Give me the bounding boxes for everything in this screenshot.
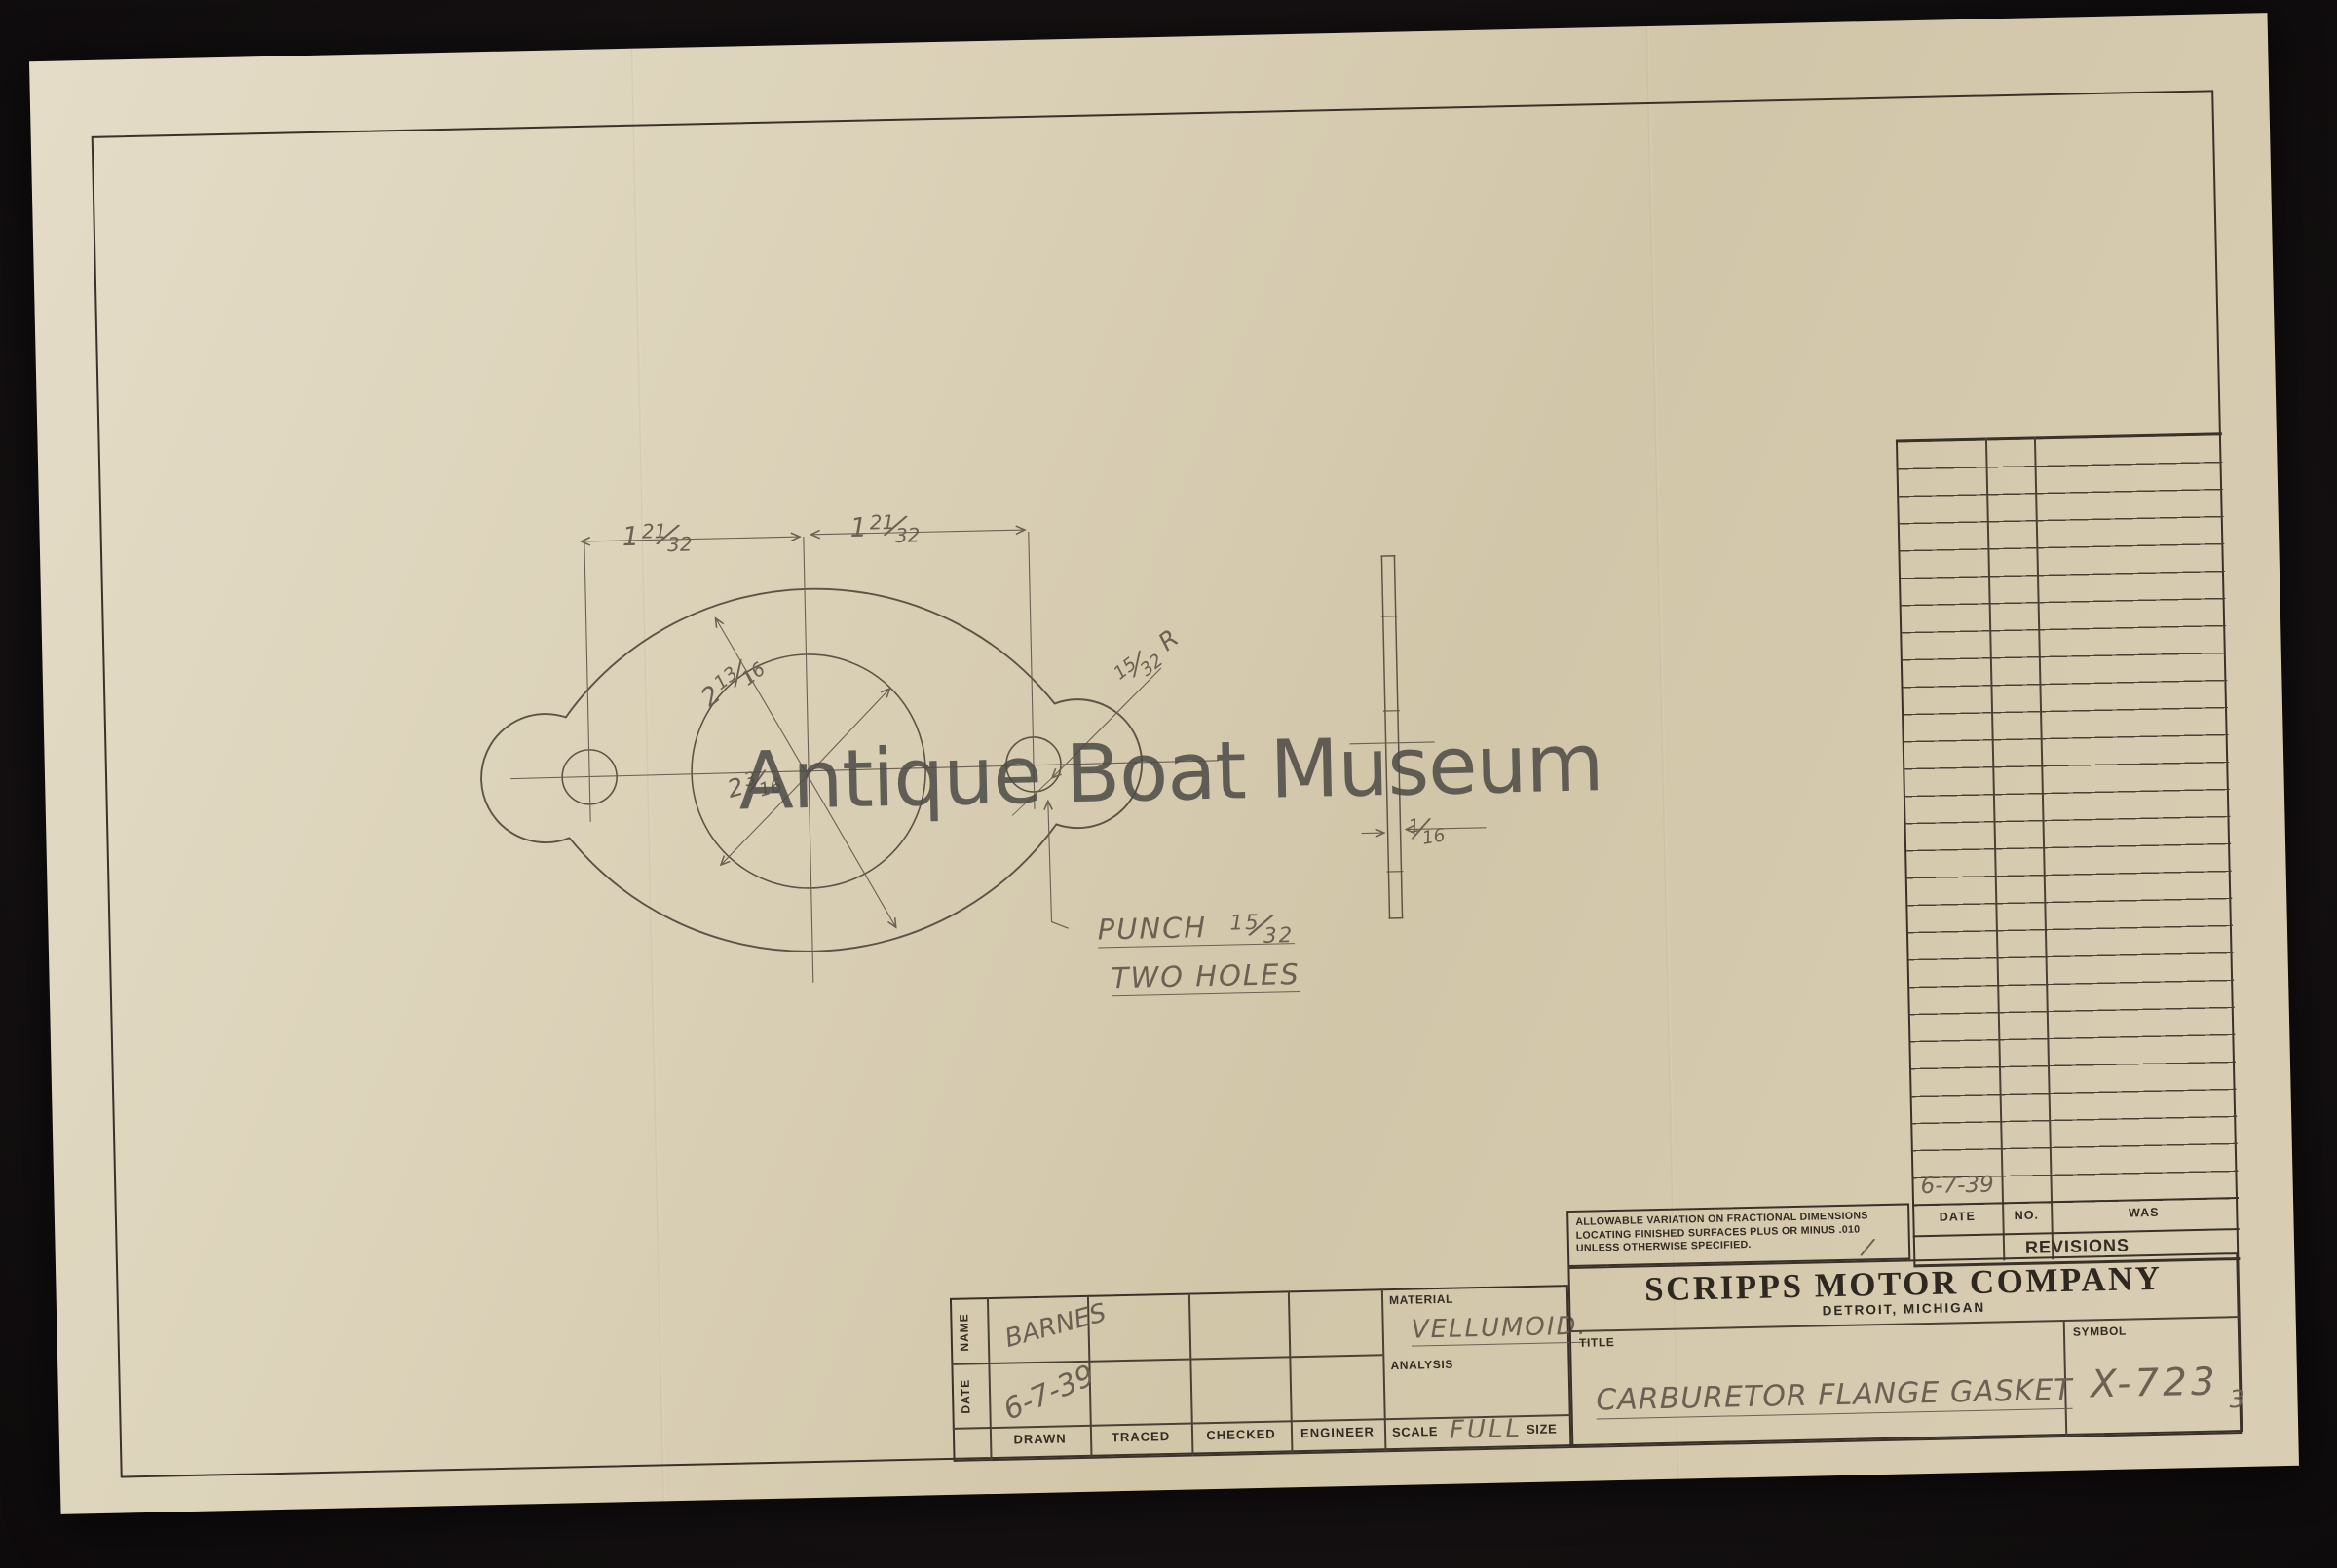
- punch-note: PUNCH 15⁄32: [1097, 909, 1295, 948]
- revision-entry-date: 6-7-39: [1920, 1173, 1994, 1200]
- material-label: MATERIAL: [1389, 1292, 1453, 1307]
- analysis-label: ANALYSIS: [1390, 1358, 1453, 1372]
- page-number: 3: [2229, 1385, 2245, 1413]
- two-holes-note: TWO HOLES: [1111, 957, 1300, 996]
- scale-value: FULL: [1450, 1414, 1524, 1445]
- dimension-thickness: 1⁄16: [1406, 811, 1447, 845]
- dimension-left-span: 121⁄32: [622, 520, 693, 552]
- date-row-label: DATE: [959, 1369, 973, 1422]
- dimension-right-span: 121⁄32: [849, 511, 921, 543]
- column-label-traced: TRACED: [1090, 1429, 1191, 1445]
- symbol-value: X-723: [2091, 1361, 2220, 1407]
- revisions-col-no: NO.: [2002, 1208, 2051, 1222]
- name-row-label: NAME: [957, 1305, 971, 1358]
- scale-label: SCALE: [1392, 1424, 1438, 1439]
- watermark: Antique Boat Museum: [737, 717, 1603, 828]
- symbol-label: SYMBOL: [2073, 1325, 2127, 1339]
- column-label-checked: CHECKED: [1191, 1426, 1291, 1442]
- title-label: TITLE: [1579, 1335, 1615, 1350]
- column-label-drawn: DRAWN: [990, 1431, 1090, 1447]
- column-label-engineer: ENGINEER: [1291, 1424, 1384, 1440]
- material-value: VELLUMOID.: [1411, 1312, 1588, 1347]
- photo-background: 121⁄32 121⁄32 213⁄16 23⁄16 15⁄32 R 1⁄16 …: [0, 0, 2337, 1568]
- blueprint-sheet: 121⁄32 121⁄32 213⁄16 23⁄16 15⁄32 R 1⁄16 …: [29, 13, 2299, 1514]
- tolerance-note: ALLOWABLE VARIATION ON FRACTIONAL DIMENS…: [1566, 1203, 1910, 1267]
- revisions-col-date: DATE: [1912, 1209, 2002, 1224]
- revisions-grid: [1896, 432, 2239, 1207]
- size-label: SIZE: [1527, 1421, 1558, 1437]
